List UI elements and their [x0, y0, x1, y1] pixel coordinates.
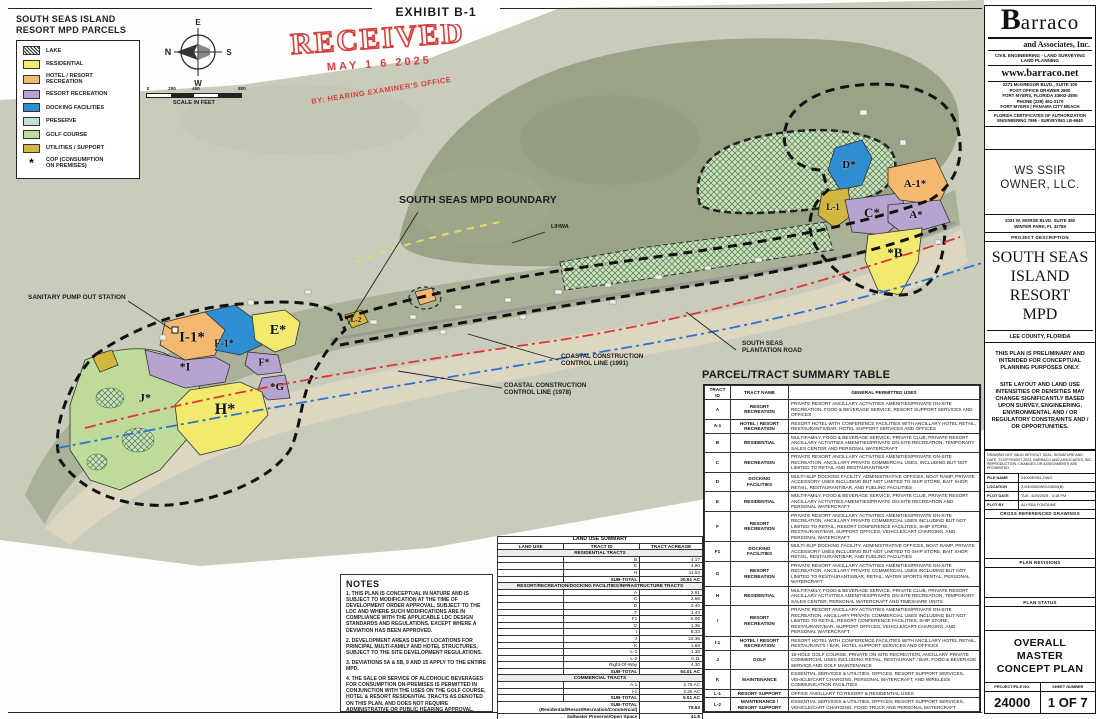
tract-id: K — [564, 642, 640, 649]
parcel-label-f-1: F-1* — [214, 339, 233, 350]
legend-label: PRESERVE — [46, 118, 76, 124]
permitted-uses: MULTIFAMILY, FOOD & BEVERAGE SERVICE, PR… — [789, 433, 980, 453]
legend-label: COP (CONSUMPTION ON PREMISES) — [46, 157, 103, 169]
legend-label: DOCKING FACILITIES — [46, 105, 104, 111]
firm-address-line: FORT MYERS, FLORIDA 33902-2800 — [988, 93, 1092, 99]
permitted-uses: 18-HOLE GOLF COURSE, PRIVATE ON-SITE REC… — [789, 650, 980, 670]
project-name: SOUTH SEAS ISLAND RESORT MPD — [987, 248, 1093, 324]
scale-tick: 800 — [238, 86, 246, 91]
table-row: F1DOCKING FACILITIESMULTI-SLIP DOCKING F… — [705, 542, 980, 562]
table-row: I-1HOTEL / RESORT RECREATIONRESORT HOTEL… — [705, 636, 980, 650]
table-row: KMAINTENANCEESSENTIAL SERVICES & UTILITI… — [705, 670, 980, 690]
land-use-cell — [498, 668, 564, 675]
file-info-rows: FILE NAME24000EXB1.DWGLOCATIONJ:\24000\D… — [985, 474, 1095, 510]
map-callout-plantation-road: SOUTH SEAS PLANTATION ROAD — [742, 340, 802, 354]
plan-status-box — [985, 607, 1095, 630]
compass-n: N — [165, 47, 172, 57]
subtotal-value: 5.01 AC — [640, 695, 703, 702]
permitted-uses: RESORT HOTEL WITH CONFERENCE FACILITIES … — [789, 419, 980, 433]
tract-acreage: 2.25 AC — [640, 688, 703, 695]
land-use-section-header: RESIDENTIAL TRACTS — [498, 550, 703, 557]
tract-id: D — [705, 472, 731, 492]
tract-id: A-1 — [564, 682, 640, 689]
permitted-uses: RESORT HOTEL WITH CONFERENCE FACILITIES … — [789, 636, 980, 650]
subtotal-label: SUB-TOTAL — [564, 668, 640, 675]
tract-acreage: 22.36 — [640, 635, 703, 642]
legend-item: GOLF COURSE — [23, 130, 135, 139]
permitted-uses: PRIVATE RESORT ANCILLARY ACTIVITIES AMEN… — [789, 453, 980, 473]
note-item: 4. THE SALE OR SERVICE OF ALCOHOLIC BEVE… — [346, 676, 487, 713]
owner-block: WS SSIR OWNER, LLC. 1031 W. MORSE BLVD. … — [985, 150, 1095, 233]
total-value: 41.8 — [640, 714, 703, 719]
disclaimer-block: THIS PLAN IS PRELIMINARY AND INTENDED FO… — [985, 343, 1095, 450]
parcel-label-j: J* — [139, 391, 151, 406]
plan-revisions-label: PLAN REVISIONS — [985, 559, 1095, 568]
permitted-uses: PRIVATE RESORT ANCILLARY ACTIVITIES AMEN… — [789, 511, 980, 542]
tract-id: I — [564, 629, 640, 636]
permitted-uses: MULTI-SLIP DOCKING FACILITY, ADMINISTRAT… — [789, 542, 980, 562]
tract-id: H — [705, 586, 731, 606]
land-use-cell — [498, 563, 564, 570]
table-row: CRECREATIONPRIVATE RESORT ANCILLARY ACTI… — [705, 453, 980, 473]
tract-acreage: 5.06 — [640, 616, 703, 623]
project-description-label: PROJECT DESCRIPTION — [985, 233, 1095, 242]
scale-caption: SCALE IN FEET — [146, 100, 242, 106]
land-use-cell — [498, 589, 564, 596]
tract-name: MAINTENANCE / RESORT SUPPORT — [731, 698, 789, 712]
tract-id: A — [705, 400, 731, 420]
tract-acreage: 2.68 — [640, 596, 703, 603]
legend-item-cop: *COP (CONSUMPTION ON PREMISES) — [23, 157, 135, 169]
firm-logo-block: Barraco and Associates, Inc. CIVIL ENGIN… — [985, 6, 1095, 127]
table-row: FRESORT RECREATIONPRIVATE RESORT ANCILLA… — [705, 511, 980, 542]
legend-label: UTILITIES / SUPPORT — [46, 145, 104, 151]
tract-acreage: 2.40 — [640, 602, 703, 609]
tract-acreage: 1.36 — [640, 622, 703, 629]
legend-swatch-residential — [23, 60, 40, 69]
tract-acreage: 4.30 — [640, 662, 703, 669]
tract-name: MAINTENANCE — [731, 670, 789, 690]
permitted-uses: ESSENTIAL SERVICES & UTILITIES, OFFICES,… — [789, 698, 980, 712]
parcel-label-e: E* — [270, 323, 286, 339]
owner-address-2: WINTER PARK, FL 32789 — [986, 224, 1094, 230]
land-use-col-header: LAND USE — [498, 543, 564, 550]
land-use-cell — [498, 655, 564, 662]
firm-subtitle: and Associates, Inc. — [988, 39, 1092, 50]
note-item: 1. THIS PLAN IS CONCEPTUAL IN NATURE AND… — [346, 591, 487, 634]
firm-certs: FLORIDA CERTIFICATES OF AUTHORIZATION EN… — [988, 110, 1092, 126]
parcel-label-d: D* — [842, 159, 855, 171]
tract-name: RESIDENTIAL — [731, 492, 789, 512]
parcel-label-g: *G — [270, 381, 284, 393]
land-use-col-header: TRACT ID — [564, 543, 640, 550]
tract-id: F1 — [705, 542, 731, 562]
tract-acreage: 11.54 — [640, 569, 703, 576]
notes-title: NOTES — [346, 579, 487, 589]
total-label: SUB-TOTAL (Residential/Resort/Recreation… — [498, 701, 640, 713]
tract-id: J — [705, 650, 731, 670]
permitted-uses: MULTIFAMILY, FOOD & BEVERAGE SERVICE, PR… — [789, 492, 980, 512]
table-row: ERESIDENTIALMULTIFAMILY, FOOD & BEVERAGE… — [705, 492, 980, 512]
compass-e: E — [195, 18, 201, 27]
land-use-title: LAND USE SUMMARY — [498, 537, 703, 544]
compass-rose: E N S W — [150, 16, 246, 88]
owner-name: WS SSIR OWNER, LLC. — [985, 164, 1095, 192]
file-info-label: PLOT DATE — [985, 492, 1019, 500]
tract-id: B — [705, 433, 731, 453]
tract-acreage: 0.11 — [640, 655, 703, 662]
copyright-note: DRAWING NOT VALID WITHOUT SEAL, SIGNATUR… — [985, 450, 1095, 474]
land-use-cell — [498, 616, 564, 623]
tract-name: RESORT RECREATION — [731, 511, 789, 542]
file-info-value: ALYSSA FONTAINE — [1019, 501, 1095, 509]
map-callout-cccl-1978: COASTAL CONSTRUCTION CONTROL LINE (1978) — [504, 382, 586, 396]
tract-acreage: 1.68 — [640, 642, 703, 649]
legend-swatch-preserve — [23, 117, 40, 126]
land-use-cell — [498, 695, 564, 702]
scale-bar-graphic — [146, 93, 242, 98]
permitted-uses: MULTIFAMILY, FOOD & BEVERAGE SERVICE, PR… — [789, 586, 980, 606]
title-block-spacer — [985, 127, 1095, 150]
tract-id: J — [564, 635, 640, 642]
tract-name: RESORT RECREATION — [731, 606, 789, 637]
tract-id: C — [564, 596, 640, 603]
subtotal-label: SUB-TOTAL — [564, 576, 640, 583]
tract-id: F1 — [564, 616, 640, 623]
map-callout-lihwa: LIHWA — [551, 224, 569, 230]
table-row: L-1RESORT SUPPORTOFFICE ANCILLARY TO RES… — [705, 689, 980, 698]
parcel-col-header: GENERAL PERMITTED USES — [789, 386, 980, 400]
legend-swatch-hotel_resort — [23, 75, 40, 84]
title-block: Barraco and Associates, Inc. CIVIL ENGIN… — [984, 5, 1096, 714]
scale-ticks: 0200400800 — [146, 86, 242, 93]
subtotal-value: 54.01 AC — [640, 668, 703, 675]
sheet-no-label: SHEET NUMBER — [1041, 683, 1096, 692]
legend-label: GOLF COURSE — [46, 132, 87, 138]
permitted-uses: MULTI-SLIP DOCKING FACILITY, ADMINISTRAT… — [789, 472, 980, 492]
plan-sheet: SOUTH SEAS MPD BOUNDARYLIHWASANITARY PUM… — [0, 0, 1100, 719]
land-use-col-header: TRACT ACREAGE — [640, 543, 703, 550]
scale-tick: 200 — [168, 86, 176, 91]
map-callout-sanitary-pump: SANITARY PUMP OUT STATION — [28, 294, 126, 301]
tract-name: RESORT SUPPORT — [731, 689, 789, 698]
tract-name: HOTEL / RESORT RECREATION — [731, 636, 789, 650]
file-info-row: PLOT BYALYSSA FONTAINE — [985, 501, 1095, 510]
tract-name: DOCKING FACILITIES — [731, 542, 789, 562]
parcel-label-i: *I — [180, 360, 191, 375]
received-stamp: RECEIVED MAY 1 6 2025 BY: HEARING EXAMIN… — [282, 15, 477, 101]
tract-acreage: 4.17 — [640, 556, 703, 563]
firm-logo: Barraco — [988, 8, 1092, 39]
land-use-summary-table: LAND USE SUMMARYLAND USETRACT IDTRACT AC… — [497, 536, 703, 719]
permitted-uses: OFFICE ANCILLARY TO RESORT & RESIDENTIAL… — [789, 689, 980, 698]
file-info-label: LOCATION — [985, 483, 1019, 491]
table-row: L-2MAINTENANCE / RESORT SUPPORTESSENTIAL… — [705, 698, 980, 712]
project-no-label: PROJECT/FILE NO. — [985, 683, 1040, 692]
land-use-cell — [498, 629, 564, 636]
cross-ref-box — [985, 519, 1095, 559]
firm-address-line: 2271 McGREGOR BLVD., SUITE 100 — [988, 82, 1092, 88]
sheet-number-block: PROJECT/FILE NO. 24000 SHEET NUMBER 1 OF… — [985, 683, 1095, 713]
project-block: SOUTH SEAS ISLAND RESORT MPD LEE COUNTY,… — [985, 242, 1095, 343]
legend-item: RESIDENTIAL — [23, 60, 135, 69]
land-use-cell — [498, 662, 564, 669]
parcel-label-a-1: A-1* — [904, 178, 927, 190]
plan-revisions-box — [985, 568, 1095, 599]
file-info-value: J:\24000\DWG\24000(B) — [1019, 483, 1095, 491]
plan-status-label: PLAN STATUS — [985, 598, 1095, 607]
sheet-title-block: OVERALL MASTER CONCEPT PLAN — [985, 631, 1095, 683]
tract-id: E — [564, 563, 640, 570]
land-use-cell — [498, 576, 564, 583]
tract-id: B — [564, 556, 640, 563]
land-use-cell — [498, 688, 564, 695]
land-use-cell — [498, 635, 564, 642]
total-label: Saltwater Preserve/Open Space — [498, 714, 640, 719]
file-info-label: PLOT BY — [985, 501, 1019, 509]
legend-swatch-utilities — [23, 144, 40, 153]
legend-box: LAKERESIDENTIALHOTEL / RESORT RECREATION… — [16, 40, 140, 179]
firm-services: CIVIL ENGINEERING - LAND SURVEYING LAND … — [988, 50, 1092, 65]
legend: SOUTH SEAS ISLAND RESORT MPD PARCELS LAK… — [16, 14, 140, 179]
tract-id: A — [564, 589, 640, 596]
parcel-label-l-2: L-2 — [351, 316, 362, 324]
legend-item: RESORT RECREATION — [23, 90, 135, 99]
tract-id: H — [564, 569, 640, 576]
tract-name: GOLF — [731, 650, 789, 670]
file-info-row: LOCATIONJ:\24000\DWG\24000(B) — [985, 483, 1095, 492]
table-row: IRESORT RECREATIONPRIVATE RESORT ANCILLA… — [705, 606, 980, 637]
parcel-col-header: TRACT NAME — [731, 386, 789, 400]
tract-id: I — [705, 606, 731, 637]
legend-swatch-lake — [23, 46, 40, 55]
table-row: A-1HOTEL / RESORT RECREATIONRESORT HOTEL… — [705, 419, 980, 433]
tract-name: HOTEL / RESORT RECREATION — [731, 419, 789, 433]
cop-asterisk-icon: * — [23, 159, 40, 167]
table-row: DDOCKING FACILITIESMULTI-SLIP DOCKING FA… — [705, 472, 980, 492]
land-use-cell — [498, 602, 564, 609]
land-use-cell — [498, 642, 564, 649]
parcel-label-a: A* — [909, 209, 922, 221]
permitted-uses: PRIVATE RESORT ANCILLARY ACTIVITIES AMEN… — [789, 561, 980, 586]
map-callout-mpd-boundary: SOUTH SEAS MPD BOUNDARY — [399, 194, 557, 206]
table-row: BRESIDENTIALMULTIFAMILY, FOOD & BEVERAGE… — [705, 433, 980, 453]
legend-item: PRESERVE — [23, 117, 135, 126]
land-use-cell — [498, 622, 564, 629]
exhibit-title: EXHIBIT B-1 — [395, 5, 476, 19]
note-item: 2. DEVELOPMENT AREAS DEPICT LOCATIONS FO… — [346, 638, 487, 656]
parcel-label-c: C* — [864, 205, 880, 221]
tract-acreage: 8.33 — [640, 629, 703, 636]
notes-body: 1. THIS PLAN IS CONCEPTUAL IN NATURE AND… — [346, 591, 487, 713]
land-use-cell — [498, 556, 564, 563]
tract-id: L-2 — [705, 698, 731, 712]
sheet-no-cell: SHEET NUMBER 1 OF 7 — [1041, 683, 1096, 713]
project-location: LEE COUNTY, FLORIDA — [987, 330, 1093, 342]
land-use-section-header: RESORT/RECREATION/DOCKING FACILITIES/INF… — [498, 583, 703, 590]
land-use-section-header: COMMERCIAL TRACTS — [498, 675, 703, 682]
tract-id: G — [564, 622, 640, 629]
tract-id: L-1 — [705, 689, 731, 698]
legend-label: HOTEL / RESORT RECREATION — [46, 73, 93, 85]
tract-name: DOCKING FACILITIES — [731, 472, 789, 492]
land-use-cell — [498, 596, 564, 603]
tract-name: RESIDENTIAL — [731, 586, 789, 606]
file-info-row: FILE NAME24000EXB1.DWG — [985, 474, 1095, 483]
tract-id: K — [705, 670, 731, 690]
tract-name: RESIDENTIAL — [731, 433, 789, 453]
file-info-value: 24000EXB1.DWG — [1019, 474, 1095, 482]
tract-id: D — [564, 602, 640, 609]
parcel-table-title: PARCEL/TRACT SUMMARY TABLE — [702, 369, 890, 381]
tract-name: RESORT RECREATION — [731, 400, 789, 420]
project-no: 24000 — [985, 692, 1040, 713]
permitted-uses: PRIVATE RESORT ANCILLARY ACTIVITIES AMEN… — [789, 606, 980, 637]
cross-ref-label: CROSS REFERENCED DRAWINGS — [985, 510, 1095, 519]
note-item: 3. DEVIATIONS 5A & 5B, 9 AND 15 APPLY TO… — [346, 660, 487, 672]
subtotal-value: 20.61 AC — [640, 576, 703, 583]
legend-swatch-golf — [23, 130, 40, 139]
table-row: GRESORT RECREATIONPRIVATE RESORT ANCILLA… — [705, 561, 980, 586]
subtotal-label: SUB-TOTAL — [564, 695, 640, 702]
land-use-cell — [498, 649, 564, 656]
compass-s: S — [226, 48, 232, 57]
parcel-label-b: *B — [887, 245, 902, 261]
parcel-label-l-1: L-1 — [826, 202, 840, 212]
sheet-no: 1 OF 7 — [1041, 692, 1096, 713]
land-use-cell — [498, 569, 564, 576]
disclaimer-2: SITE LAYOUT AND LAND USE INTENSITIES OR … — [988, 382, 1092, 431]
total-value: 79.63 — [640, 701, 703, 713]
legend-item: LAKE — [23, 46, 135, 55]
owner-address: 1031 W. MORSE BLVD. SUITE 350 WINTER PAR… — [985, 214, 1095, 232]
file-info-value: TUE, 4/29/2025 - 3:18 PM — [1019, 492, 1095, 500]
table-row: HRESIDENTIALMULTIFAMILY, FOOD & BEVERAGE… — [705, 586, 980, 606]
tract-acreage: 4.90 — [640, 563, 703, 570]
file-info-label: FILE NAME — [985, 474, 1019, 482]
legend-label: RESIDENTIAL — [46, 61, 83, 67]
file-info-row: PLOT DATETUE, 4/29/2025 - 3:18 PM — [985, 492, 1095, 501]
tract-acreage: 1.38 — [640, 649, 703, 656]
notes-box: NOTES 1. THIS PLAN IS CONCEPTUAL IN NATU… — [340, 574, 493, 712]
project-no-cell: PROJECT/FILE NO. 24000 — [985, 683, 1041, 713]
land-use-cell — [498, 682, 564, 689]
tract-id: F — [705, 511, 731, 542]
tract-name: RECREATION — [731, 453, 789, 473]
legend-label: LAKE — [46, 48, 61, 54]
tract-id: F — [564, 609, 640, 616]
tract-acreage: 2.91 — [640, 589, 703, 596]
firm-logo-rest: arraco — [1021, 10, 1079, 34]
legend-title: SOUTH SEAS ISLAND RESORT MPD PARCELS — [16, 14, 140, 36]
tract-name: RESORT RECREATION — [731, 561, 789, 586]
tract-id: A-1 — [705, 419, 731, 433]
scale-tick: 0 — [147, 86, 150, 91]
tract-acreage: 1.44 — [640, 609, 703, 616]
table-row: JGOLF18-HOLE GOLF COURSE, PRIVATE ON-SIT… — [705, 650, 980, 670]
parcel-col-header: TRACT ID — [705, 386, 731, 400]
sheet-title: OVERALL MASTER CONCEPT PLAN — [987, 637, 1093, 676]
firm-logo-initial: B — [1001, 3, 1021, 36]
legend-label: RESORT RECREATION — [46, 91, 107, 97]
tract-id: Right-Of-Way — [564, 662, 640, 669]
land-use-cell — [498, 609, 564, 616]
tract-id: I-1 — [564, 688, 640, 695]
legend-item: DOCKING FACILITIES — [23, 103, 135, 112]
parcel-label-h: H* — [215, 401, 235, 419]
tract-id: I-1 — [705, 636, 731, 650]
legend-item: HOTEL / RESORT RECREATION — [23, 73, 135, 85]
firm-website: www.barraco.net — [988, 65, 1092, 82]
tract-id: G — [705, 561, 731, 586]
legend-item: UTILITIES / SUPPORT — [23, 144, 135, 153]
tract-acreage: 2.76 AC — [640, 682, 703, 689]
parcel-label-f: F* — [258, 358, 269, 369]
exhibit-title-box: EXHIBIT B-1 — [372, 0, 500, 24]
scale-bar: 0200400800 SCALE IN FEET — [146, 86, 242, 106]
permitted-uses: ESSENTIAL SERVICES & UTILITIES, OFFICES,… — [789, 670, 980, 690]
permitted-uses: PRIVATE RESORT ANCILLARY ACTIVITIES AMEN… — [789, 400, 980, 420]
legend-swatch-resort_recreation — [23, 90, 40, 99]
tract-id: L-2 — [564, 655, 640, 662]
firm-address-line: FORT MYERS | PANAMA CITY BEACH — [988, 104, 1092, 110]
map-callout-cccl-1991: COASTAL CONSTRUCTION CONTROL LINE (1991) — [561, 353, 643, 367]
tract-id: L-1 — [564, 649, 640, 656]
legend-swatch-docking — [23, 103, 40, 112]
parcel-label-i-1: I-1* — [179, 330, 205, 347]
table-row: ARESORT RECREATIONPRIVATE RESORT ANCILLA… — [705, 400, 980, 420]
parcel-tract-summary-table: TRACT IDTRACT NAMEGENERAL PERMITTED USES… — [703, 384, 981, 713]
firm-address: 2271 McGREGOR BLVD., SUITE 100POST OFFIC… — [988, 82, 1092, 110]
tract-id: E — [705, 492, 731, 512]
scale-tick: 400 — [192, 86, 200, 91]
disclaimer-1: THIS PLAN IS PRELIMINARY AND INTENDED FO… — [988, 351, 1092, 372]
tract-id: C — [705, 453, 731, 473]
